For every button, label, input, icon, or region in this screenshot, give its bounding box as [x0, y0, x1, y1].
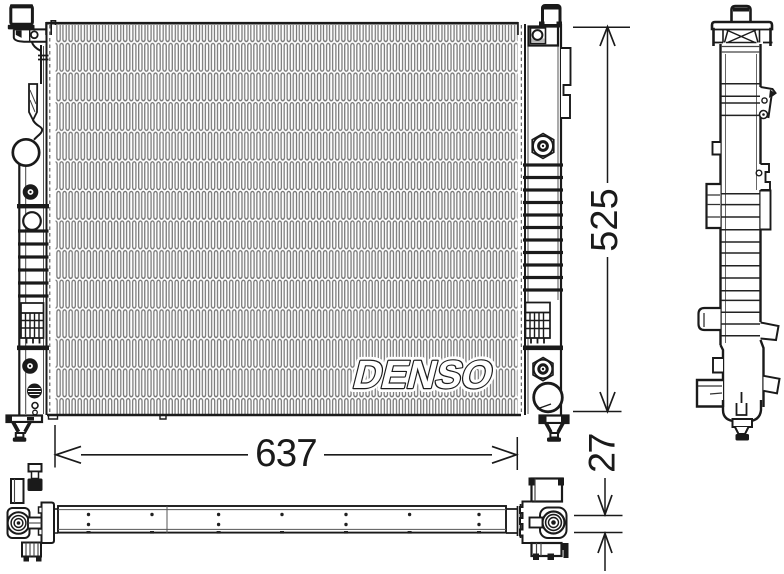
svg-text:525: 525	[584, 188, 626, 251]
svg-text:27: 27	[581, 434, 623, 473]
svg-text:637: 637	[255, 432, 317, 475]
svg-text:DENSO: DENSO	[349, 354, 498, 397]
